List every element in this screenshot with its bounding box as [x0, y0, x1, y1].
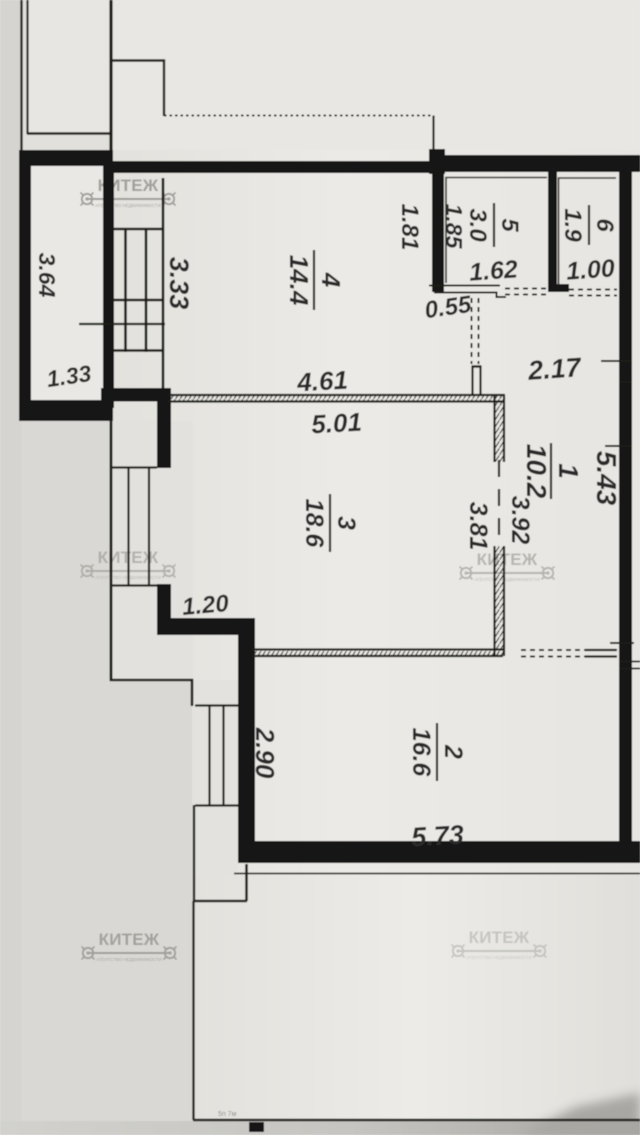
- svg-text:10.2: 10.2: [521, 444, 552, 499]
- svg-text:16.6: 16.6: [407, 728, 435, 778]
- svg-text:3.92: 3.92: [506, 496, 534, 545]
- svg-text:5.01: 5.01: [310, 407, 362, 440]
- svg-text:3.33: 3.33: [164, 257, 194, 310]
- svg-text:14.4: 14.4: [284, 255, 314, 306]
- svg-text:5.43: 5.43: [591, 451, 622, 506]
- svg-text:3.0: 3.0: [464, 208, 491, 242]
- svg-text:2.90: 2.90: [250, 727, 280, 779]
- svg-text:1.62: 1.62: [468, 255, 519, 286]
- svg-text:3: 3: [332, 516, 360, 530]
- svg-text:18.6: 18.6: [300, 499, 328, 549]
- svg-text:3.81: 3.81: [464, 502, 492, 551]
- svg-text:5: 5: [496, 218, 523, 232]
- svg-text:1.00: 1.00: [565, 254, 616, 285]
- svg-text:1.9: 1.9: [559, 208, 586, 242]
- svg-text:6: 6: [591, 218, 618, 232]
- svg-text:1.85: 1.85: [441, 204, 467, 250]
- svg-text:1: 1: [553, 463, 584, 479]
- svg-text:3.64: 3.64: [34, 253, 60, 298]
- svg-text:1.20: 1.20: [181, 590, 231, 621]
- svg-text:2.17: 2.17: [526, 352, 583, 386]
- svg-text:1.81: 1.81: [396, 204, 423, 251]
- svg-text:5п 7м: 5п 7м: [218, 1111, 237, 1118]
- svg-text:2: 2: [439, 744, 467, 759]
- svg-text:4.61: 4.61: [295, 365, 348, 398]
- svg-text:4: 4: [316, 272, 346, 288]
- svg-text:5.73: 5.73: [410, 820, 464, 853]
